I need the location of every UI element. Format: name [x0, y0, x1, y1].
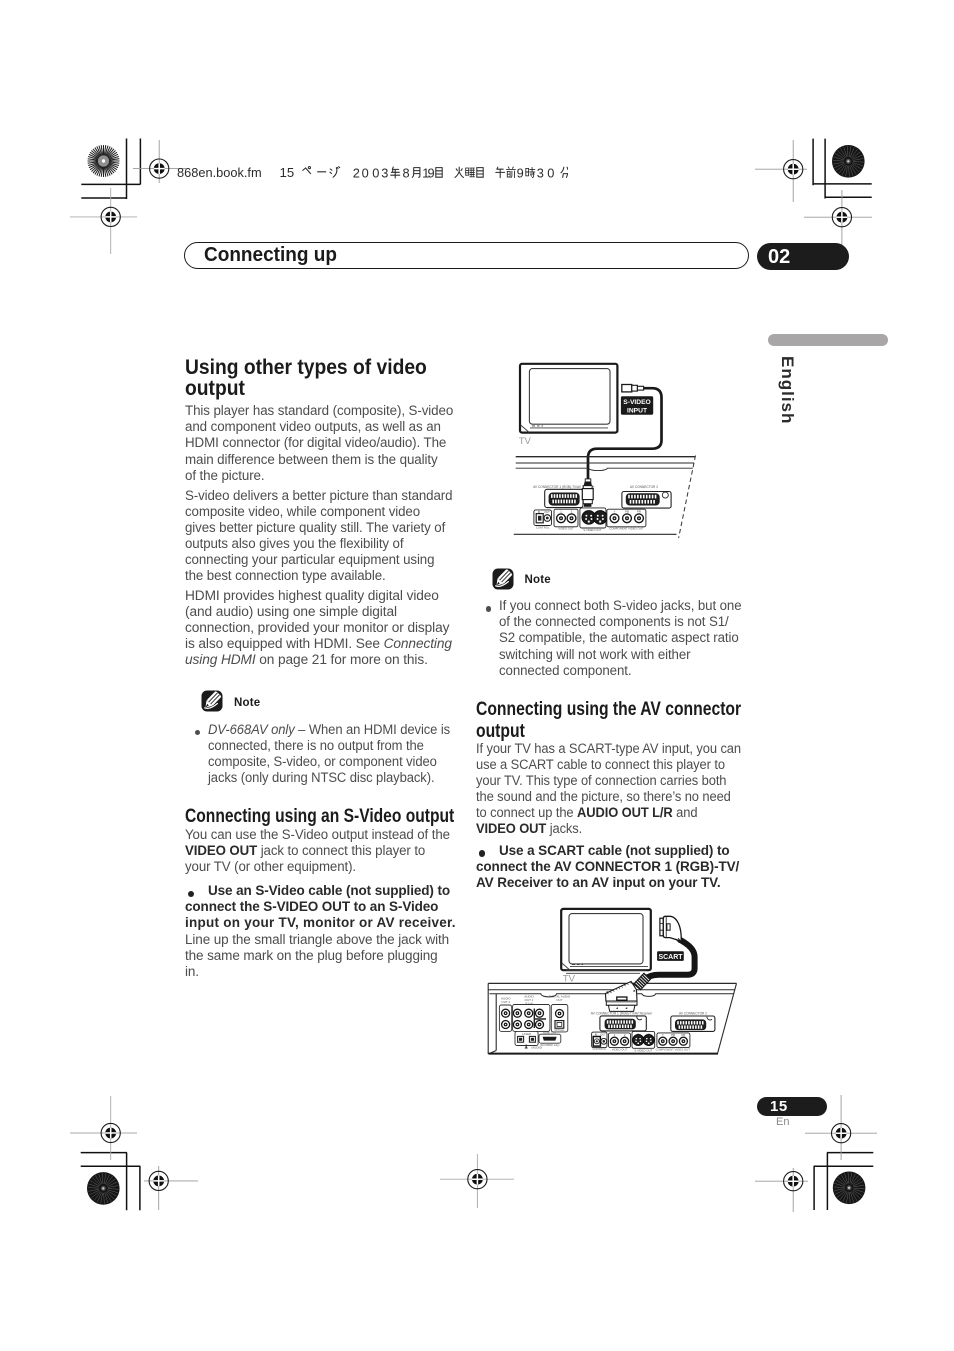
svg-text:SCART: SCART [658, 954, 683, 961]
svg-text:S-VIDEO: S-VIDEO [623, 399, 651, 406]
svg-text:CONTROL: CONTROL [592, 1047, 606, 1051]
svg-text:INPUT: INPUT [627, 407, 648, 414]
svg-text:COMPONENT VIDEO OUT: COMPONENT VIDEO OUT [656, 1048, 691, 1052]
svg-text:0: 0 [362, 165, 371, 180]
svg-text:S-VIDEO OUT: S-VIDEO OUT [583, 528, 601, 532]
svg-text:AV CONNECTOR 2: AV CONNECTOR 2 [630, 485, 658, 489]
svg-text:LASER: LASER [522, 1032, 531, 1036]
svg-text:VIDEO OUT: VIDEO OUT [558, 527, 574, 531]
svg-text:PR: PR [637, 509, 641, 513]
svg-text:VIDEO OUT: VIDEO OUT [612, 1048, 628, 1052]
svg-text:PB: PB [625, 509, 629, 513]
svg-text:AV CONNECTOR 1 (RGB)-TV/AV Rec: AV CONNECTOR 1 (RGB)-TV/AV Receiver [591, 1012, 653, 1016]
svg-text:3: 3 [381, 165, 390, 180]
svg-text:OUT: OUT [544, 510, 550, 514]
svg-text:COMPONENT VIDEO OUT: COMPONENT VIDEO OUT [609, 527, 644, 531]
svg-text:Y: Y [614, 509, 616, 513]
svg-text:8: 8 [403, 165, 412, 180]
svg-text:OUT: OUT [556, 998, 563, 1002]
svg-text:9: 9 [517, 165, 526, 180]
svg-text:AV CONNECTOR 2: AV CONNECTOR 2 [679, 1012, 707, 1016]
svg-text:TV: TV [519, 436, 532, 447]
svg-text:CONTROL: CONTROL [536, 526, 550, 530]
svg-text:OUT 2: OUT 2 [501, 1000, 510, 1004]
svg-text:OUT 1: OUT 1 [525, 998, 534, 1002]
svg-text:0: 0 [547, 165, 556, 180]
svg-text:HDMI OUT: HDMI OUT [543, 1030, 557, 1034]
svg-text:S-VIDEO OUT: S-VIDEO OUT [634, 1048, 652, 1052]
svg-text:3: 3 [537, 165, 546, 180]
svg-text:(DV-668AV only): (DV-668AV only) [540, 1043, 559, 1047]
